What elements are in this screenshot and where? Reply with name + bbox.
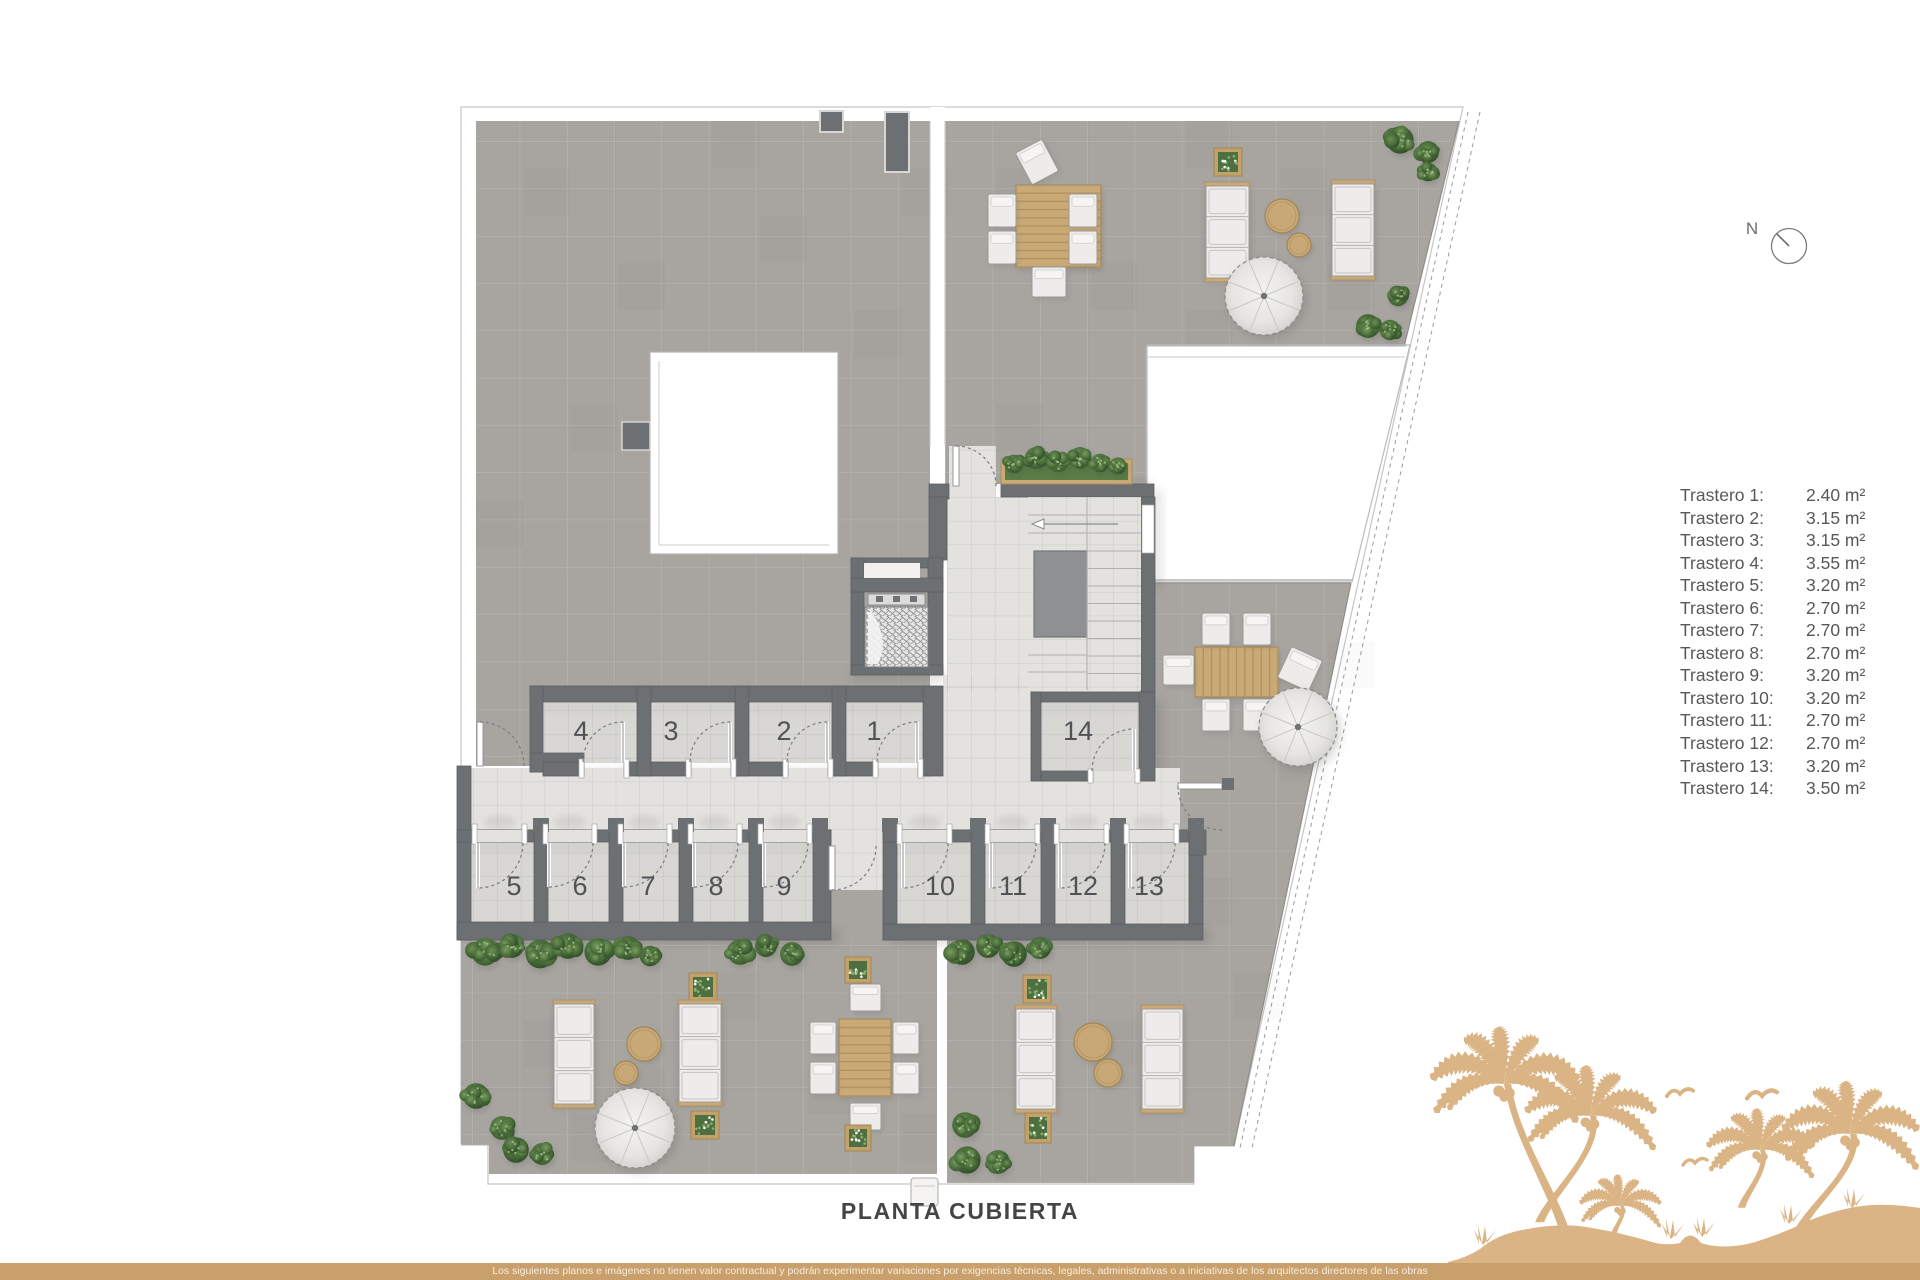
svg-text:2: 2 (776, 716, 791, 746)
svg-text:13: 13 (1134, 871, 1164, 901)
svg-text:6: 6 (572, 871, 587, 901)
svg-text:12: 12 (1068, 871, 1098, 901)
svg-text:3: 3 (663, 716, 678, 746)
svg-text:4: 4 (573, 716, 588, 746)
svg-text:9: 9 (776, 871, 791, 901)
svg-text:1: 1 (866, 716, 881, 746)
svg-text:14: 14 (1063, 716, 1093, 746)
svg-text:5: 5 (506, 871, 521, 901)
svg-text:8: 8 (708, 871, 723, 901)
svg-text:7: 7 (640, 871, 655, 901)
svg-text:11: 11 (999, 871, 1027, 901)
svg-text:N: N (1746, 219, 1758, 238)
svg-text:10: 10 (925, 871, 955, 901)
